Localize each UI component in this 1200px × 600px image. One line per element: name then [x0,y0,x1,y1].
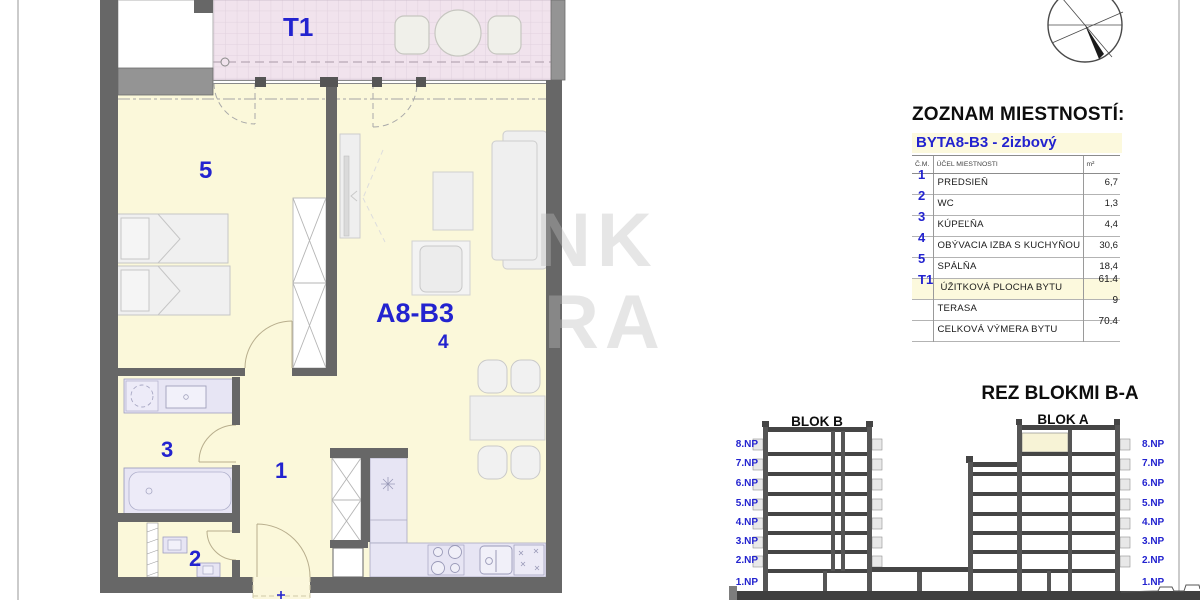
table-row: 5 SPÁLŇA 18,4 [912,258,1120,279]
svg-text:4.NP: 4.NP [736,517,759,528]
svg-text:7.NP: 7.NP [1142,458,1165,469]
kitchen-sink [480,546,512,574]
table-row: 1 PREDSIEŇ 6,7 [912,174,1120,195]
hall-closet [332,458,361,542]
armchair [412,241,470,295]
summary-row-usable-area: T1 ÚŽITKOVÁ PLOCHA BYTU 61.4 [912,279,1120,300]
block-b [753,421,882,591]
block-b-structure [762,421,873,591]
bath-sink [166,386,206,408]
tv [344,156,349,236]
table-header-row: Č.M. ÚČEL MIESTNOSTI m² [912,156,1120,174]
block-b-windows [753,439,882,567]
label-living: 4 [438,332,449,353]
label-hall: 1 [275,458,287,483]
svg-text:NK: NK [536,198,658,283]
header-area: m² [1083,156,1120,174]
drawing-sheet: T1 [0,0,1200,600]
table-row: 2 WC 1,3 [912,195,1120,216]
terrace-furniture [395,10,521,56]
tv-board [340,134,360,238]
bathtub [124,468,236,514]
svg-text:5.NP: 5.NP [736,498,759,509]
compass-needle [1085,25,1104,59]
chair [511,446,540,479]
svg-text:4.NP: 4.NP [1142,517,1165,528]
chair [511,360,540,393]
wall-bedroom-living [326,82,337,370]
room-list-panel: ZOZNAM MIESTNOSTÍ: BYTA8-B3 - 2izbový Č.… [912,104,1122,342]
label-bedroom: 5 [199,157,212,184]
apartment-subtitle: BYTA8-B3 - 2izbový [912,133,1122,153]
svg-text:7.NP: 7.NP [736,458,759,469]
terrace: T1 [213,0,553,80]
wall-bottom-right [310,577,562,593]
svg-text:2.NP: 2.NP [736,555,759,566]
svg-text:1.NP: 1.NP [736,577,759,588]
section-ground [729,585,1200,600]
summary-row-terrace: TERASA 9 [912,300,1120,321]
compass-icon [1048,0,1123,62]
floor-plan: T1 [100,0,565,599]
sink-symbol [381,477,395,491]
svg-text:8.NP: 8.NP [1142,439,1165,450]
floor-labels-right: 8.NP 7.NP 6.NP 5.NP 4.NP 3.NP 2.NP 1.NP [1142,439,1165,588]
svg-text:6.NP: 6.NP [736,478,759,489]
block-a-label: BLOK A [1037,412,1088,427]
svg-text:2.NP: 2.NP [1142,555,1165,566]
svg-text:3.NP: 3.NP [736,536,759,547]
label-wc: 2 [189,546,201,571]
table-row: 4 OBÝVACIA IZBA S KUCHYŇOU 30,6 [912,237,1120,258]
chair [478,360,507,393]
highlighted-unit [1022,433,1068,452]
chair [478,446,507,479]
svg-text:RA: RA [544,280,666,365]
table-row: 3 KÚPEĽŇA 4,4 [912,216,1120,237]
kitchen-counter-vertical [370,458,407,543]
entry-cabinet [333,548,363,577]
label-bath: 3 [161,437,173,462]
svg-text:6.NP: 6.NP [1142,478,1165,489]
block-b-label: BLOK B [791,414,843,429]
terrace-drain [221,58,229,66]
wardrobe [293,198,326,368]
section-view: REZ BLOKMI B-A BLOK B BLOK A [729,383,1200,600]
terrace-label: T1 [283,12,313,42]
svg-text:1.NP: 1.NP [1142,577,1165,588]
wall-left [100,0,118,593]
block-a-windows [1120,439,1130,567]
label-apartment: A8-B3 [376,298,454,328]
dining-table [470,396,545,440]
svg-text:3.NP: 3.NP [1142,536,1165,547]
wall-terrace-right [551,0,565,80]
coffee-table [433,172,473,230]
entrance-threshold [253,577,310,599]
lightwell [118,0,213,95]
svg-text:5.NP: 5.NP [1142,498,1165,509]
drainer [514,545,544,575]
floor-labels-left: 8.NP 7.NP 6.NP 5.NP 4.NP 3.NP 2.NP 1.NP [736,439,759,588]
section-connector [872,567,968,591]
header-purpose: ÚČEL MIESTNOSTI [933,156,1083,174]
watermark: NK RA [536,198,666,365]
summary-row-total: CELKOVÁ VÝMERA BYTU 70.4 [912,321,1120,342]
block-a [966,419,1130,591]
section-title: REZ BLOKMI B-A [981,383,1139,404]
svg-text:8.NP: 8.NP [736,439,759,450]
wall-bottom-left [100,577,253,593]
dining-set [470,360,545,479]
room-table: Č.M. ÚČEL MIESTNOSTI m² 1 PREDSIEŇ 6,7 2… [912,155,1120,342]
room-list-title: ZOZNAM MIESTNOSTÍ: [912,104,1122,126]
